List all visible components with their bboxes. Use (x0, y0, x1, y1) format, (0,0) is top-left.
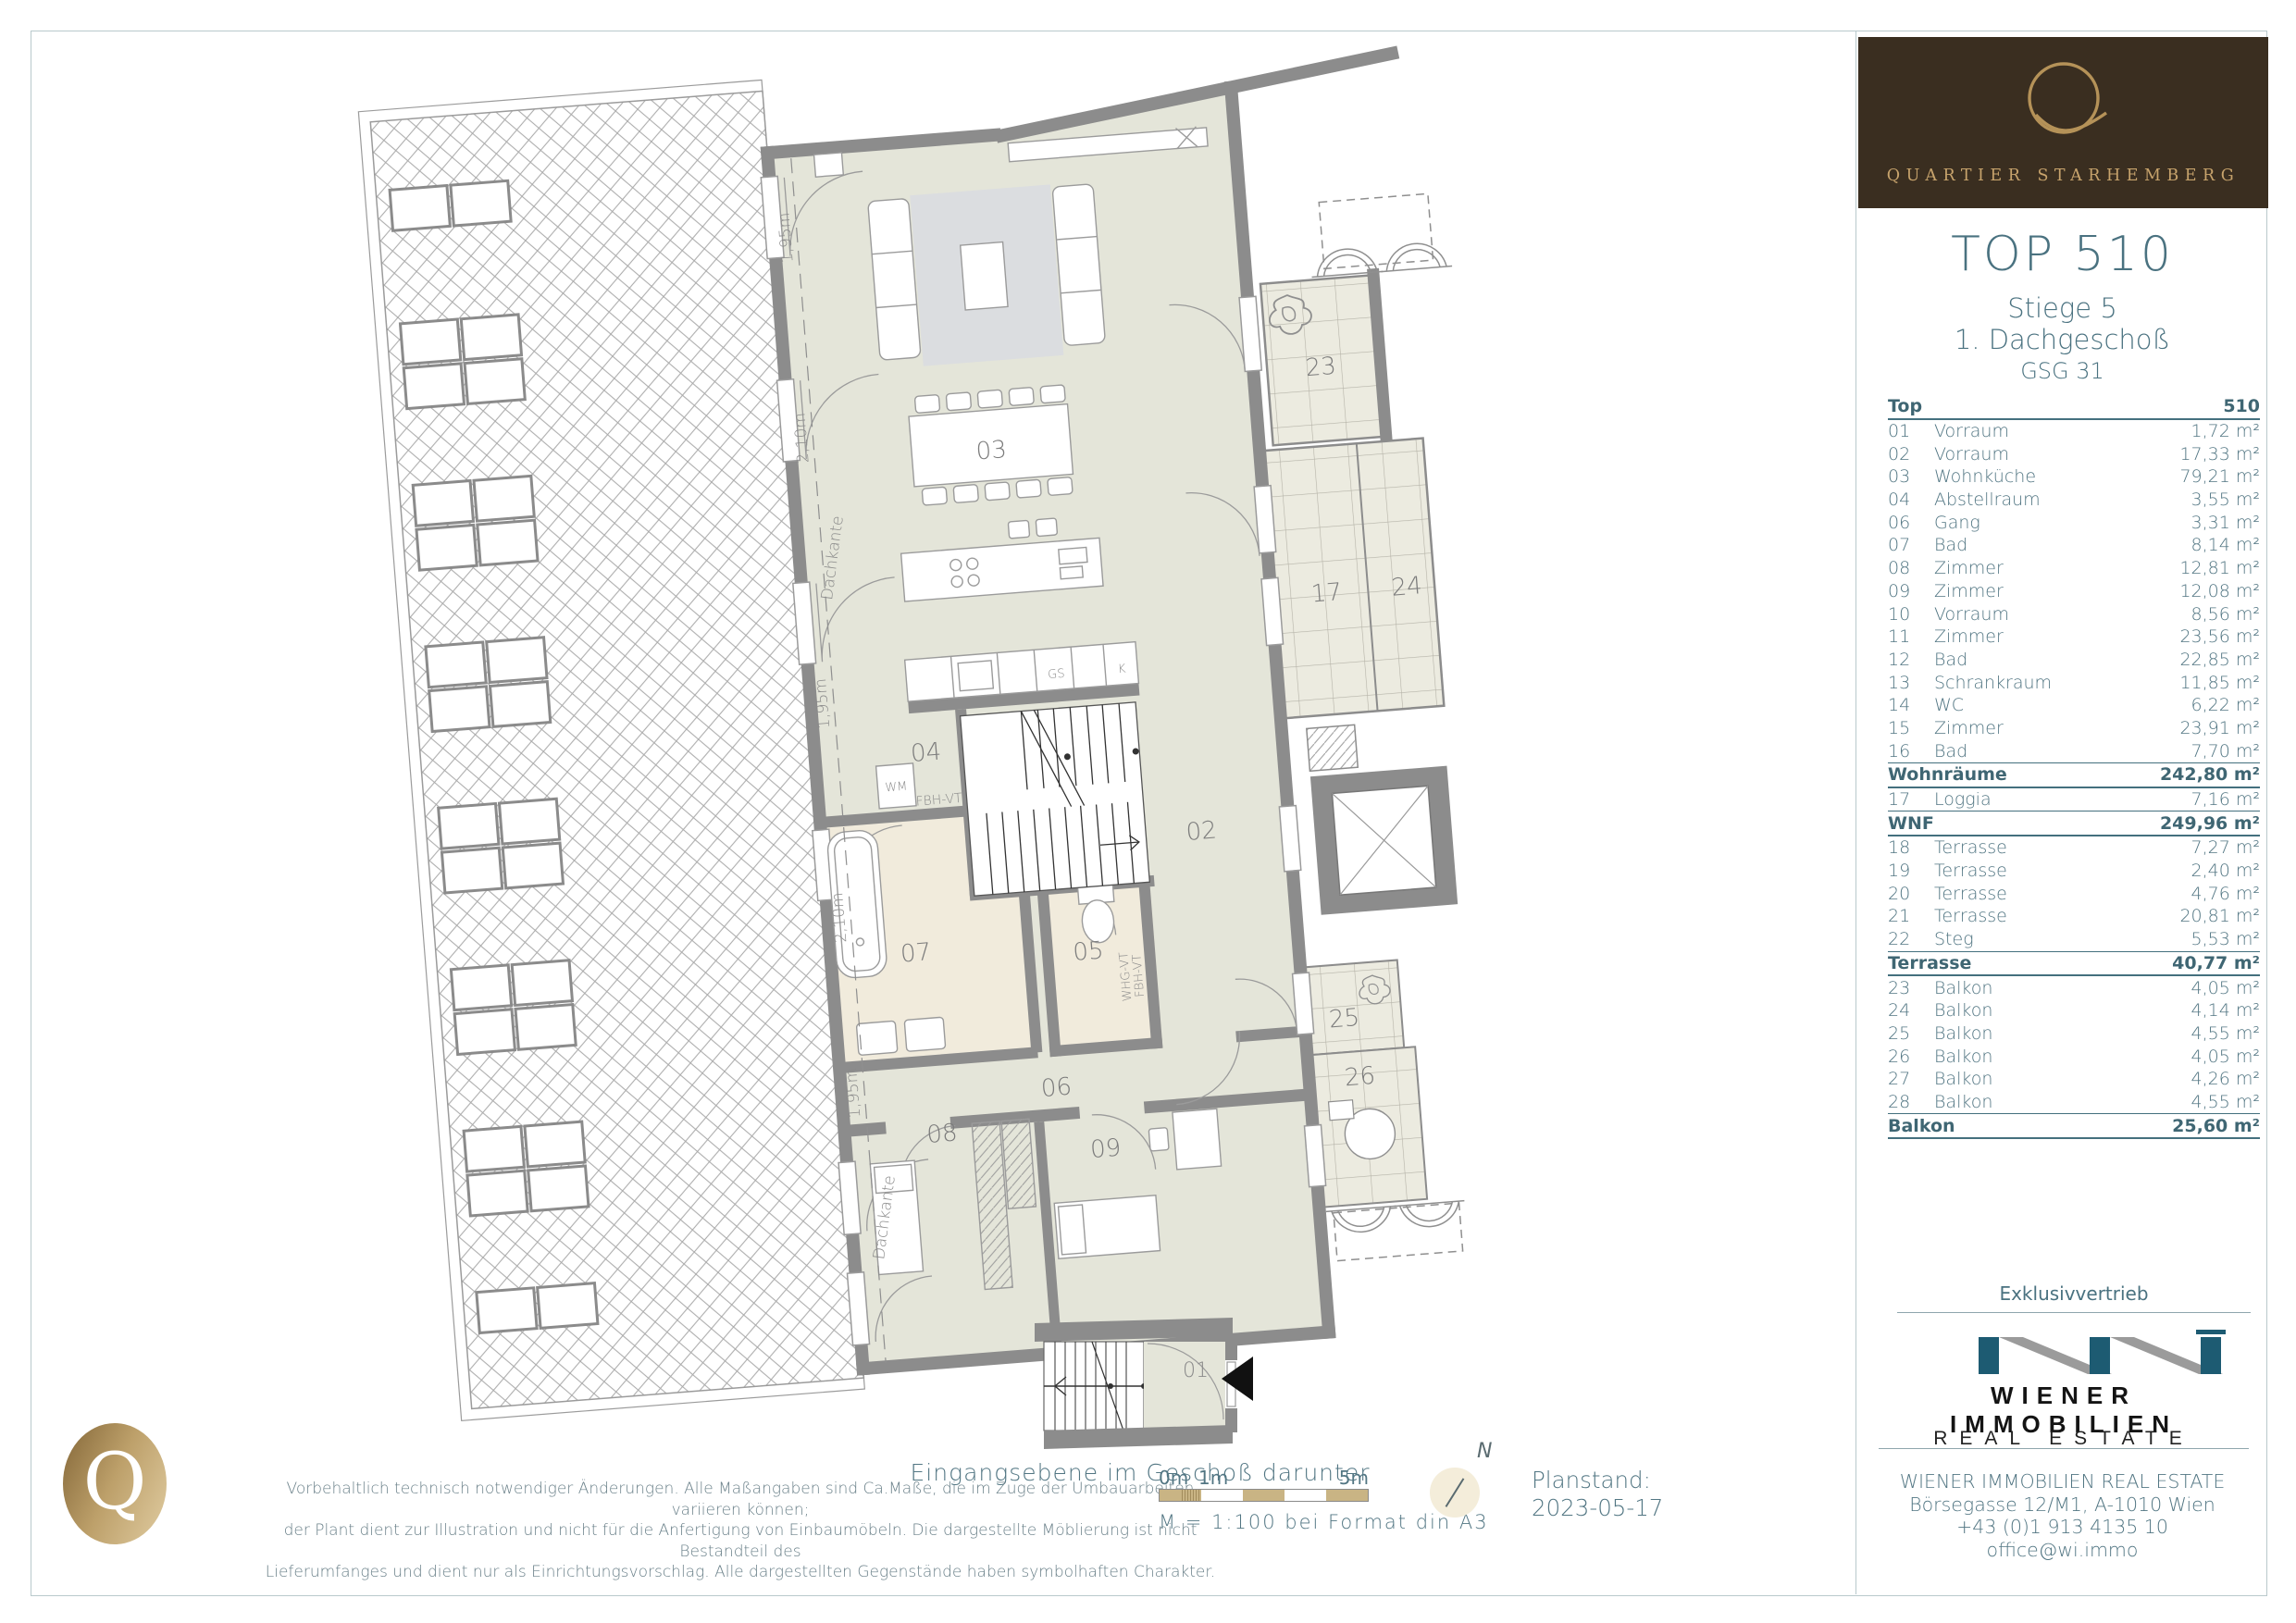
balcony-railing-top (1306, 192, 1452, 278)
area-row: 02Vorraum17,33 m² (1888, 442, 2260, 465)
area-row: 23Balkon4,05 m² (1888, 976, 2260, 999)
room-label-03: 03 (975, 436, 1008, 466)
brand-q-icon (2013, 54, 2115, 157)
area-row: 10Vorraum8,56 m² (1888, 602, 2260, 626)
area-row: 26Balkon4,05 m² (1888, 1045, 2260, 1068)
area-row: 07Bad8,14 m² (1888, 534, 2260, 557)
plan-status-label: Planstand: (1532, 1467, 1663, 1494)
dim-210-b: 2,10m (828, 892, 850, 944)
room-label-04: 04 (910, 738, 942, 769)
gold-q-letter: Q (83, 1443, 147, 1520)
balcony-railing-bottom (1326, 1201, 1469, 1262)
contact-line-3: +43 (0)1 913 4135 10 (1856, 1516, 2268, 1539)
unit-stiege: Stiege 5 (1856, 292, 2268, 324)
wm-label: WM (885, 779, 908, 795)
distribution-label: Exklusivvertrieb (1897, 1282, 2251, 1313)
area-row: 24Balkon4,14 m² (1888, 999, 2260, 1022)
disclaimer-line-1: Vorbehaltlich technisch notwendiger Ände… (264, 1479, 1217, 1520)
unit-title: TOP 510 (1856, 227, 2268, 282)
area-row: 18Terrasse7,27 m² (1888, 836, 2260, 860)
floorplan-drawing: 03 02 04 05 06 07 08 09 17 23 24 25 26 1… (0, 0, 1860, 1536)
unit-code: GSG 31 (1856, 358, 2268, 384)
room-label-24: 24 (1390, 572, 1422, 602)
scale-bar: 0m 1m 5m M = 1:100 bei Format din A3 (1159, 1467, 1369, 1533)
area-row: 09Zimmer12,08 m² (1888, 580, 2260, 603)
area-subtotal-row: Wohnräume242,80 m² (1888, 762, 2260, 788)
area-row: 04Abstellraum3,55 m² (1888, 489, 2260, 512)
area-row: 01Vorraum1,72 m² (1888, 420, 2260, 443)
dim-195-a: 1,95m (775, 212, 797, 264)
scale-text: M = 1:100 bei Format din A3 (1159, 1511, 1369, 1533)
area-row: 15Zimmer23,91 m² (1888, 717, 2260, 740)
area-row: 12Bad22,85 m² (1888, 649, 2260, 672)
area-table-header-right: 510 (2223, 396, 2260, 416)
gs-label: GS (1048, 667, 1065, 682)
area-row: 22Steg5,53 m² (1888, 928, 2260, 951)
room-label-09: 09 (1089, 1134, 1122, 1165)
room-label-05: 05 (1072, 936, 1104, 967)
area-table-rows: 01Vorraum1,72 m²02Vorraum17,33 m²03Wohnk… (1888, 420, 2260, 1139)
area-row: 25Balkon4,55 m² (1888, 1022, 2260, 1046)
elevator (1307, 718, 1458, 915)
disclaimer-text: Vorbehaltlich technisch notwendiger Ände… (264, 1479, 1217, 1583)
area-row: 21Terrasse20,81 m² (1888, 905, 2260, 928)
area-row: 06Gang3,31 m² (1888, 511, 2260, 534)
area-table-header: Top 510 (1888, 395, 2260, 420)
scale-5m: 5m (1339, 1467, 1369, 1489)
north-arrow-icon (1430, 1468, 1480, 1518)
info-panel: QUARTIER STARHEMBERG TOP 510 Stiege 5 1.… (1856, 31, 2268, 1594)
contact-line-1: WIENER IMMOBILIEN REAL ESTATE (1856, 1470, 2268, 1493)
scale-1m: 1m (1198, 1467, 1228, 1489)
stairs (961, 702, 1150, 896)
area-table-header-left: Top (1888, 396, 1922, 416)
area-row: 17Loggia7,16 m² (1888, 788, 2260, 811)
room-label-23: 23 (1305, 353, 1337, 383)
scale-0m: 0m (1159, 1467, 1188, 1489)
dim-195-c: 1,95m (842, 1067, 864, 1119)
disclaimer-line-3: Lieferumfanges und dient nur als Einrich… (264, 1562, 1217, 1583)
area-row: 19Terrasse2,40 m² (1888, 860, 2260, 883)
contact-line-4[interactable]: office@wi.immo (1856, 1539, 2268, 1562)
room-label-25: 25 (1328, 1004, 1360, 1035)
scale-bar-strip (1159, 1489, 1369, 1502)
area-subtotal-row: Terrasse40,77 m² (1888, 951, 2260, 977)
area-row: 03Wohnküche79,21 m² (1888, 465, 2260, 489)
k-label: K (1117, 663, 1126, 677)
brand-logo-box: QUARTIER STARHEMBERG (1858, 37, 2268, 208)
room-label-07: 07 (900, 938, 932, 969)
room-label-08: 08 (925, 1119, 958, 1149)
room-label-01: 01 (1183, 1359, 1209, 1382)
dim-210-a: 2,10m (790, 412, 813, 464)
area-subtotal-row: Balkon25,60 m² (1888, 1113, 2260, 1139)
area-subtotal-row: WNF249,96 m² (1888, 811, 2260, 836)
floorplan-sheet: 03 02 04 05 06 07 08 09 17 23 24 25 26 1… (0, 0, 2296, 1623)
area-row: 14WC6,22 m² (1888, 694, 2260, 717)
contact-block: WIENER IMMOBILIEN REAL ESTATE Börsegasse… (1856, 1470, 2268, 1561)
north-letter: N (1477, 1440, 1492, 1463)
unit-floor: 1. Dachgeschoß (1856, 324, 2268, 355)
wi-company-sub: REAL ESTATE (1879, 1428, 2249, 1450)
plan-status-date: 2023-05-17 (1532, 1494, 1663, 1522)
gold-q-logo-icon: Q (63, 1423, 167, 1544)
room-label-17: 17 (1310, 578, 1343, 609)
room-label-02: 02 (1185, 816, 1218, 847)
area-row: 08Zimmer12,81 m² (1888, 557, 2260, 580)
wiener-immobilien-logo-icon (1897, 1330, 2251, 1378)
area-row: 28Balkon4,55 m² (1888, 1091, 2260, 1114)
area-row: 27Balkon4,26 m² (1888, 1068, 2260, 1091)
area-row: 20Terrasse4,76 m² (1888, 882, 2260, 905)
room-label-26: 26 (1344, 1062, 1376, 1093)
dim-195-b: 1,95m (812, 677, 834, 729)
room-label-06: 06 (1040, 1073, 1073, 1104)
plan-rotated-group: 03 02 04 05 06 07 08 09 17 23 24 25 26 1… (358, 27, 1536, 1420)
plan-status: Planstand: 2023-05-17 (1532, 1467, 1663, 1522)
entrance-arrow-icon (1222, 1357, 1253, 1401)
area-table: Top 510 01Vorraum1,72 m²02Vorraum17,33 m… (1888, 395, 2260, 1139)
area-row: 16Bad7,70 m² (1888, 739, 2260, 762)
disclaimer-line-2: der Plant dient zur Illustration und nic… (264, 1520, 1217, 1562)
brand-name: QUARTIER STARHEMBERG (1858, 167, 2268, 185)
area-row: 13Schrankraum11,85 m² (1888, 671, 2260, 694)
area-row: 11Zimmer23,56 m² (1888, 626, 2260, 649)
contact-line-2: Börsegasse 12/M1, A-1010 Wien (1856, 1493, 2268, 1517)
